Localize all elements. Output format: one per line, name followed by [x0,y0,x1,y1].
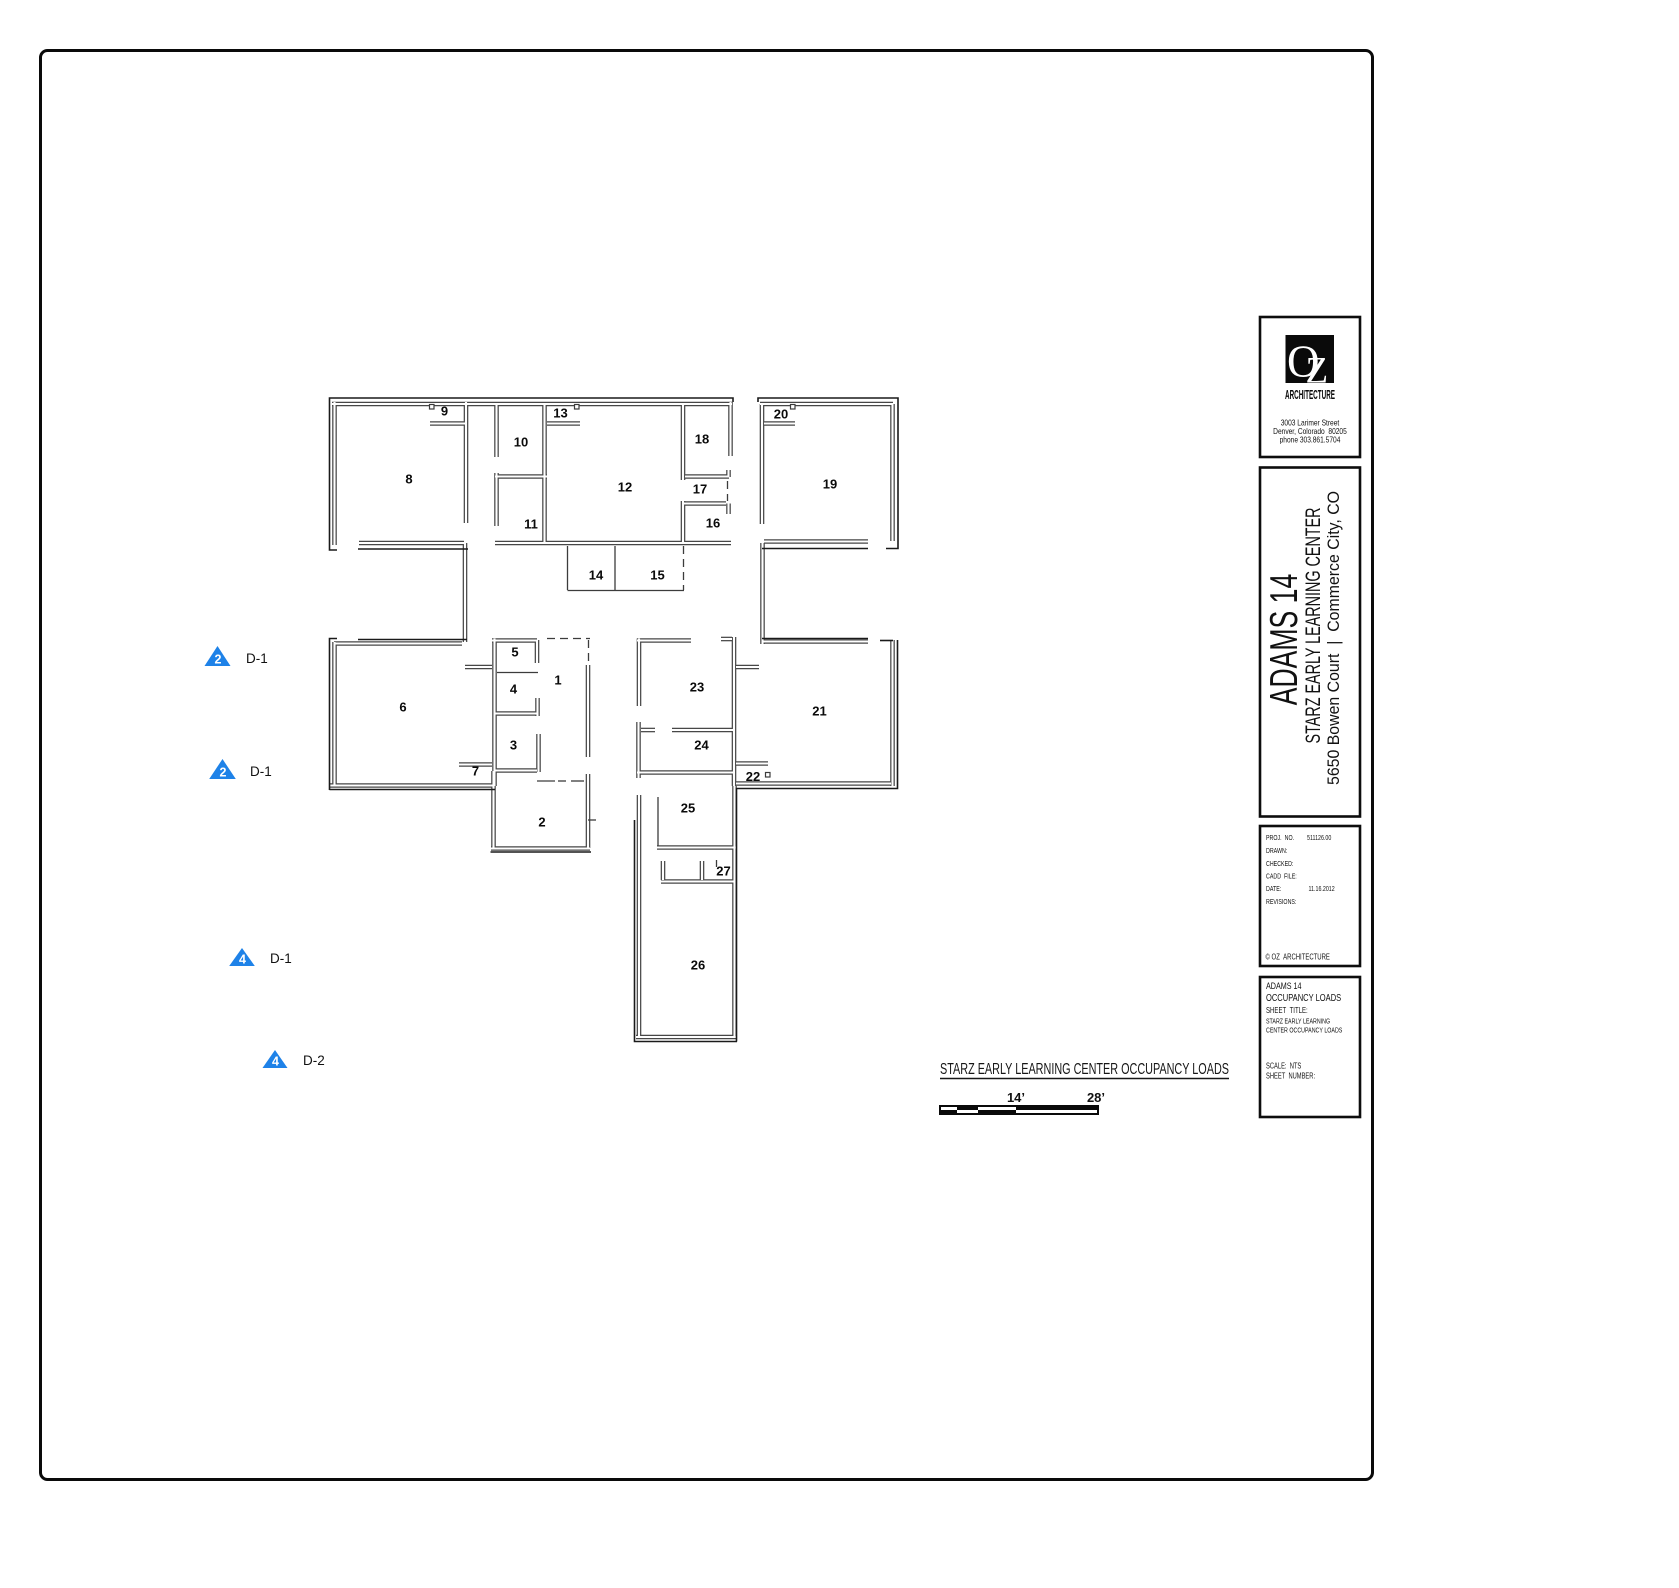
svg-text:REVISIONS:: REVISIONS: [1266,898,1297,906]
svg-text:D-2: D-2 [303,1053,325,1068]
svg-text:2: 2 [220,766,227,780]
svg-text:18: 18 [695,432,709,447]
svg-text:5650 Bowen Court | Commerce: 5650 Bowen Court | Commerce City, CO [1324,491,1343,785]
svg-text:4: 4 [272,1055,279,1069]
svg-text:1: 1 [554,673,561,688]
svg-text:15: 15 [650,568,664,583]
svg-text:PROJ. NO.: PROJ. NO. [1266,834,1294,842]
svg-text:SCALE: NTS: SCALE: NTS [1266,1063,1302,1071]
svg-text:3: 3 [510,738,517,753]
svg-text:14’: 14’ [1007,1090,1025,1105]
svg-text:D-1: D-1 [250,764,272,779]
svg-text:28’: 28’ [1087,1090,1105,1105]
svg-text:DRAWN:: DRAWN: [1266,847,1288,855]
svg-text:20: 20 [774,407,788,422]
svg-text:12: 12 [618,480,632,495]
svg-text:D-1: D-1 [270,951,292,966]
svg-text:17: 17 [693,482,707,497]
svg-text:10: 10 [514,435,528,450]
svg-text:22: 22 [746,769,760,784]
svg-text:CHECKED:: CHECKED: [1266,860,1294,868]
svg-text:6: 6 [399,700,406,715]
svg-text:7: 7 [472,764,479,779]
svg-text:DATE:: DATE: [1266,885,1281,893]
svg-text:ARCHITECTURE: ARCHITECTURE [1285,388,1335,402]
svg-text:25: 25 [681,801,695,816]
svg-text:14: 14 [589,568,604,583]
svg-text:8: 8 [405,472,412,487]
svg-text:SHEET NUMBER:: SHEET NUMBER: [1266,1073,1315,1081]
svg-text:5: 5 [511,645,518,660]
svg-text:D-1: D-1 [246,651,268,666]
svg-text:2: 2 [215,653,222,667]
svg-text:24: 24 [694,738,709,753]
svg-text:4: 4 [239,953,246,967]
svg-text:2: 2 [538,815,545,830]
svg-text:ADAMS 14: ADAMS 14 [1263,574,1306,706]
svg-text:9: 9 [441,404,448,419]
svg-text:11: 11 [524,517,538,532]
svg-text:SHEET TITLE:: SHEET TITLE: [1266,1005,1308,1015]
svg-text:19: 19 [823,477,837,492]
svg-text:CENTER OCCUPANCY LOADS: CENTER OCCUPANCY LOADS [1266,1027,1342,1035]
svg-text:© OZ ARCHITECTURE: © OZ ARCHITECTURE [1266,953,1331,962]
svg-text:CADD FILE:: CADD FILE: [1266,873,1297,881]
svg-text:ADAMS 14: ADAMS 14 [1266,981,1302,991]
svg-text:16: 16 [706,516,720,531]
svg-text:STARZ EARLY LEARNING CENTER OC: STARZ EARLY LEARNING CENTER OCCUPANCY LO… [940,1061,1229,1078]
svg-text:27: 27 [716,864,730,879]
svg-text:phone 303.861.5704: phone 303.861.5704 [1280,435,1341,445]
svg-text:21: 21 [812,704,826,719]
svg-text:OCCUPANCY LOADS: OCCUPANCY LOADS [1266,992,1341,1003]
svg-text:STARZ EARLY LEARNING CENTER: STARZ EARLY LEARNING CENTER [1302,508,1325,744]
svg-text:511126.00: 511126.00 [1307,834,1332,842]
svg-text:13: 13 [553,406,567,421]
svg-text:23: 23 [690,680,704,695]
svg-text:11.16.2012: 11.16.2012 [1309,885,1336,893]
svg-text:26: 26 [691,958,705,973]
svg-text:4: 4 [510,682,518,697]
svg-text:STARZ EARLY LEARNING: STARZ EARLY LEARNING [1266,1018,1330,1026]
